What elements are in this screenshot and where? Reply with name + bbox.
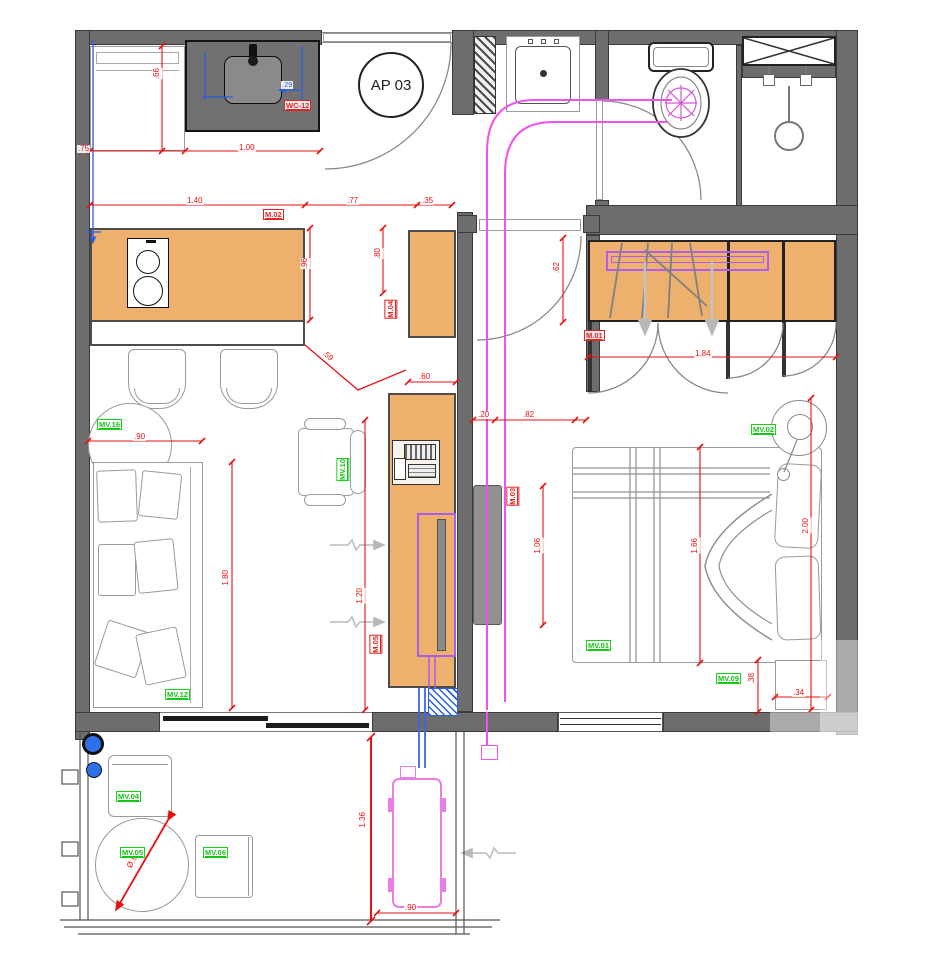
cooktop-burner-1: [136, 250, 160, 274]
ac-unit: [392, 778, 442, 908]
tag-cabinet: M.04: [384, 300, 397, 319]
balcony-drain-small: [86, 762, 102, 778]
dim-room-depth: 2.00: [801, 518, 811, 534]
entry-door-leaf: [323, 33, 451, 42]
wardrobe-divider-2: [782, 240, 785, 322]
floor-socket-box: [428, 688, 458, 716]
tag-side-table: MV.16: [97, 419, 122, 430]
dim-cabinet2-width: .60: [418, 373, 431, 381]
floor-plan: AP 03: [0, 0, 927, 960]
balcony-chair-back: [112, 759, 168, 765]
dim-cabinet-offset: .35: [421, 197, 434, 205]
desk-keyboard: [404, 444, 436, 460]
sliding-panel-2: [266, 723, 369, 728]
dim-cabinet-width: .80: [373, 248, 383, 259]
balcony-round-table: [95, 818, 189, 912]
wall-living-hall: [457, 212, 473, 712]
wall-bath-left-top: [595, 30, 609, 100]
sofa-cushion: [96, 469, 138, 522]
bath-sink-tap1: [528, 39, 533, 44]
shower-head: [774, 121, 804, 151]
toilet-icon: [653, 69, 709, 137]
wall-bottom-b: [372, 712, 558, 732]
fridge-top-detail: [96, 52, 179, 64]
dim-diagonal-gap: .59: [320, 349, 335, 364]
tag-balcony-table: MV.05: [120, 847, 145, 858]
sofa-seat-edge: [190, 467, 191, 703]
wardrobe-leaf-3: [782, 322, 786, 377]
balcony-seat-edge: [248, 837, 251, 896]
balcony-drain: [82, 733, 104, 755]
hall-cabinet: [408, 230, 456, 338]
hall-door-leaf: [479, 219, 581, 231]
wall-left: [75, 30, 90, 740]
pipe-junction-box: [481, 745, 498, 760]
bath-door-leaf: [596, 100, 603, 200]
wall-hall-top-b: [583, 215, 600, 233]
dim-ac-width: .90: [404, 904, 417, 912]
desk-tray: [408, 464, 436, 478]
unit-tag-label: AP 03: [371, 77, 412, 94]
kitchen-island-overhang: [90, 320, 305, 346]
bedroom-window-glass2: [560, 724, 661, 725]
kitchen-faucet-head: [248, 56, 258, 66]
wall-hall-top-a: [457, 215, 477, 233]
wall-bath-bedroom: [586, 205, 858, 235]
dim-fridge-depth: .66: [152, 68, 162, 79]
tag-lamp: MV.02: [751, 424, 776, 435]
dim-sofa-width: .90: [133, 433, 146, 441]
dim-island-gap: .77: [346, 197, 359, 205]
sofa-cushion: [138, 470, 183, 520]
dim-island-width: 1.40: [186, 197, 204, 205]
bedroom-window-glass: [560, 718, 661, 719]
entry-shaft-hatch: [474, 36, 496, 114]
tag-wardrobe: M.01: [584, 330, 605, 341]
bedroom-window: [558, 712, 663, 732]
shower-valve-2: [800, 74, 812, 86]
dim-fridge-width: .75: [77, 145, 90, 153]
sofa-cushion: [133, 538, 178, 594]
tag-sink: WC-12: [284, 100, 311, 111]
tag-sofa: MV.12: [165, 689, 190, 700]
dim-sofa-length: 1.80: [221, 570, 231, 586]
tag-balcony-seat: MV.06: [203, 847, 228, 858]
sliding-panel-1: [163, 716, 268, 721]
sofa-cushion: [98, 544, 136, 596]
dim-tv-distance: 1.20: [355, 588, 365, 604]
tag-island: M.02: [263, 209, 284, 220]
bedroom-sliding-panel: [473, 485, 502, 625]
tag-hall-panel: M.03: [506, 487, 519, 506]
toilet-cistern-inner: [653, 47, 709, 67]
unit-tag-circle: AP 03: [358, 52, 424, 118]
cooktop-burner-2: [133, 276, 163, 306]
dim-door-b: .82: [522, 411, 535, 419]
bath-sink-tap2: [541, 39, 546, 44]
shower-valve-1: [763, 74, 775, 86]
wall-under-shaftbox: [742, 64, 836, 78]
tv-screen: [437, 519, 446, 651]
bath-sink-drain: [540, 70, 547, 77]
dining-chair-back: [350, 430, 366, 494]
adjacent-unit-overlay-2: [770, 712, 860, 737]
balcony-sliding-door: [160, 712, 372, 732]
dining-chair-arm-bottom: [304, 494, 346, 506]
dim-balcony-depth: 1.36: [358, 812, 368, 828]
cooktop-knobs: [146, 240, 156, 243]
dim-closet-side: .62: [552, 262, 562, 273]
dim-island-depth: .96: [300, 258, 310, 269]
entry-shaft: [452, 30, 474, 115]
floor-lamp-bulb: [787, 414, 813, 440]
dim-nightstand-width: .34: [792, 689, 805, 697]
dim-bed-length: 1.66: [690, 538, 700, 554]
tag-chair: MV.10: [336, 458, 349, 481]
floor-lamp-base: [777, 468, 790, 481]
fridge-divider: [96, 70, 179, 71]
balcony-seat: [195, 835, 253, 898]
wall-bottom-a: [75, 712, 160, 732]
dim-counter-width: 1.00: [238, 144, 256, 152]
tag-balcony-chair: MV.04: [116, 791, 141, 802]
ac-connector: [400, 766, 416, 778]
shaft-box: [742, 36, 836, 66]
tag-bed: MV.01: [586, 640, 611, 651]
wardrobe-rail-inner: [611, 256, 764, 263]
wall-right: [836, 30, 858, 735]
bath-sink-tap3: [554, 39, 559, 44]
dim-closet-width: 1.84: [694, 350, 712, 358]
wardrobe-leaf-2: [726, 322, 730, 379]
desk-screen: [394, 458, 406, 480]
dim-panel-height: 1.06: [533, 538, 543, 554]
tag-tv-unit: M.05: [369, 635, 382, 654]
kitchen-island: [90, 228, 305, 322]
pillow-2: [775, 555, 822, 640]
dining-chair-arm-top: [304, 418, 346, 430]
dim-door-a: .20: [477, 411, 490, 419]
dim-nightstand-depth: .38: [747, 673, 757, 684]
tag-nightstand: MV.09: [716, 673, 741, 684]
dim-sink-offset: .29: [281, 81, 293, 89]
